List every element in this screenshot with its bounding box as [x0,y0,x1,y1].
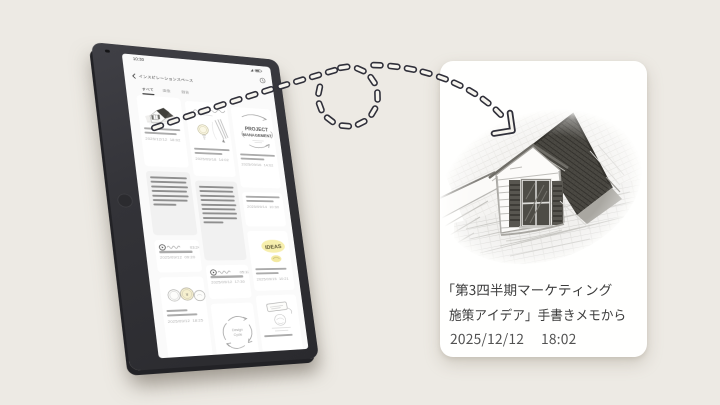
svg-text:IDEAS: IDEAS [265,244,282,251]
svg-text:Cycle: Cycle [233,333,242,337]
svg-text:MANAGEMENT: MANAGEMENT [242,132,272,138]
svg-text:Design: Design [232,328,243,332]
svg-text:03:24: 03:24 [190,245,200,250]
svg-text:05:12: 05:12 [239,270,248,275]
